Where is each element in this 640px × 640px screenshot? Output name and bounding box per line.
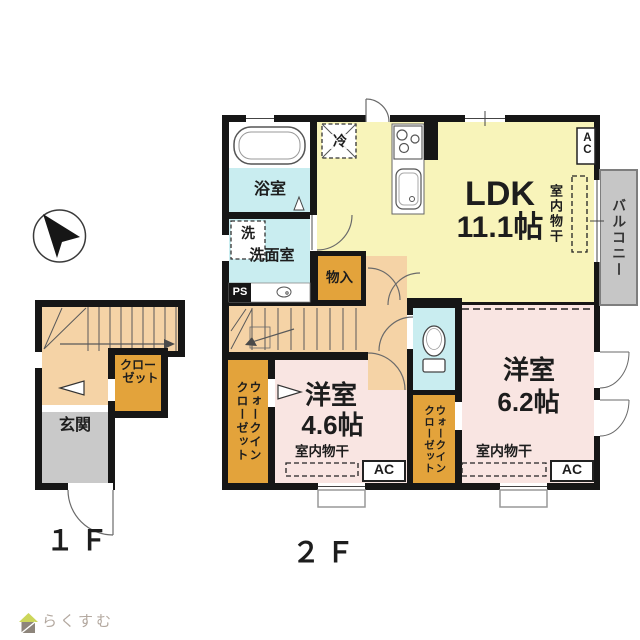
wic-right-line1: ウォークイン [434,405,445,474]
bathroom-label: 浴室 [235,181,305,198]
washroom-label: 洗面室 [228,248,316,264]
floor1-title: １Ｆ [46,526,114,556]
ldk-top-door-opening [366,115,390,122]
wic-right-line2: クローゼット [423,405,434,474]
ac-label-bedroom1: AC [363,462,405,477]
toilet-top-wall [407,298,462,308]
toilet-icon [423,326,445,372]
balcony-label: バルコニー [600,172,637,303]
drying-label-bedroom2: 室内物干 [462,444,546,459]
storage-label: 物入 [316,271,363,286]
pipe-space-label: PS [229,287,251,299]
outdoor-unit-1 [318,490,365,507]
floor2-title: ２Ｆ [292,538,360,568]
vanity-sink-icon [277,287,291,297]
f1-entrance-label: 玄関 [42,417,108,434]
logo-house-icon [19,613,38,633]
ac-label-ldk: AC [581,132,593,156]
wic-right-label: ウォークイン クローゼット [413,395,455,483]
f1-side-window [35,352,42,368]
wic-left-line2: クローゼット [235,381,248,462]
wic-right-opening [455,402,462,430]
bedroom2-name-label: 洋室 [474,356,584,384]
fridge-label: 冷 [328,134,352,149]
f1-closet-opening [108,379,115,401]
f1-closet-line1: クロー [115,359,161,372]
f1-closet-label: クロー ゼット [115,359,161,385]
f1-hall-floor [42,351,108,405]
bedroom2-window-2 [594,400,600,436]
wic-left-opening [268,379,275,407]
bedroom2-window-1 [594,352,600,388]
watermark-text: らくすむ [42,614,114,630]
bedroom2-size-label: 6.2帖 [466,388,591,416]
drying-label-bedroom1: 室内物干 [286,445,358,460]
wic-left-line1: ウォークイン [248,381,261,462]
washroom-opening [310,215,317,251]
toilet-opening [407,315,413,349]
north-arrow-icon [34,210,86,262]
bedroom1-size-label: 4.6帖 [270,411,395,439]
floor-plan-page: { "compass": { "name": "north-arrow" }, … [0,0,640,640]
drying-label-ldk: 室内物干 [548,184,562,244]
kitchen-wall-stub [424,122,438,160]
f1-closet-line2: ゼット [115,372,161,385]
ldk-size-label: 11.1帖 [405,212,595,244]
stairs-lower-wall [222,352,368,360]
wic-left-label: ウォークイン クローゼット [228,360,268,483]
f1-entry-opening [68,483,113,490]
ac-label-bedroom2: AC [551,462,593,477]
hall-floor [366,256,407,306]
outdoor-unit-2 [500,490,547,507]
bathtub-icon [234,127,305,164]
f1-entrance-step [42,405,108,412]
casement-swings [600,352,629,436]
bedroom1-name-label: 洋室 [276,381,386,409]
washer-label: 洗 [233,226,263,241]
